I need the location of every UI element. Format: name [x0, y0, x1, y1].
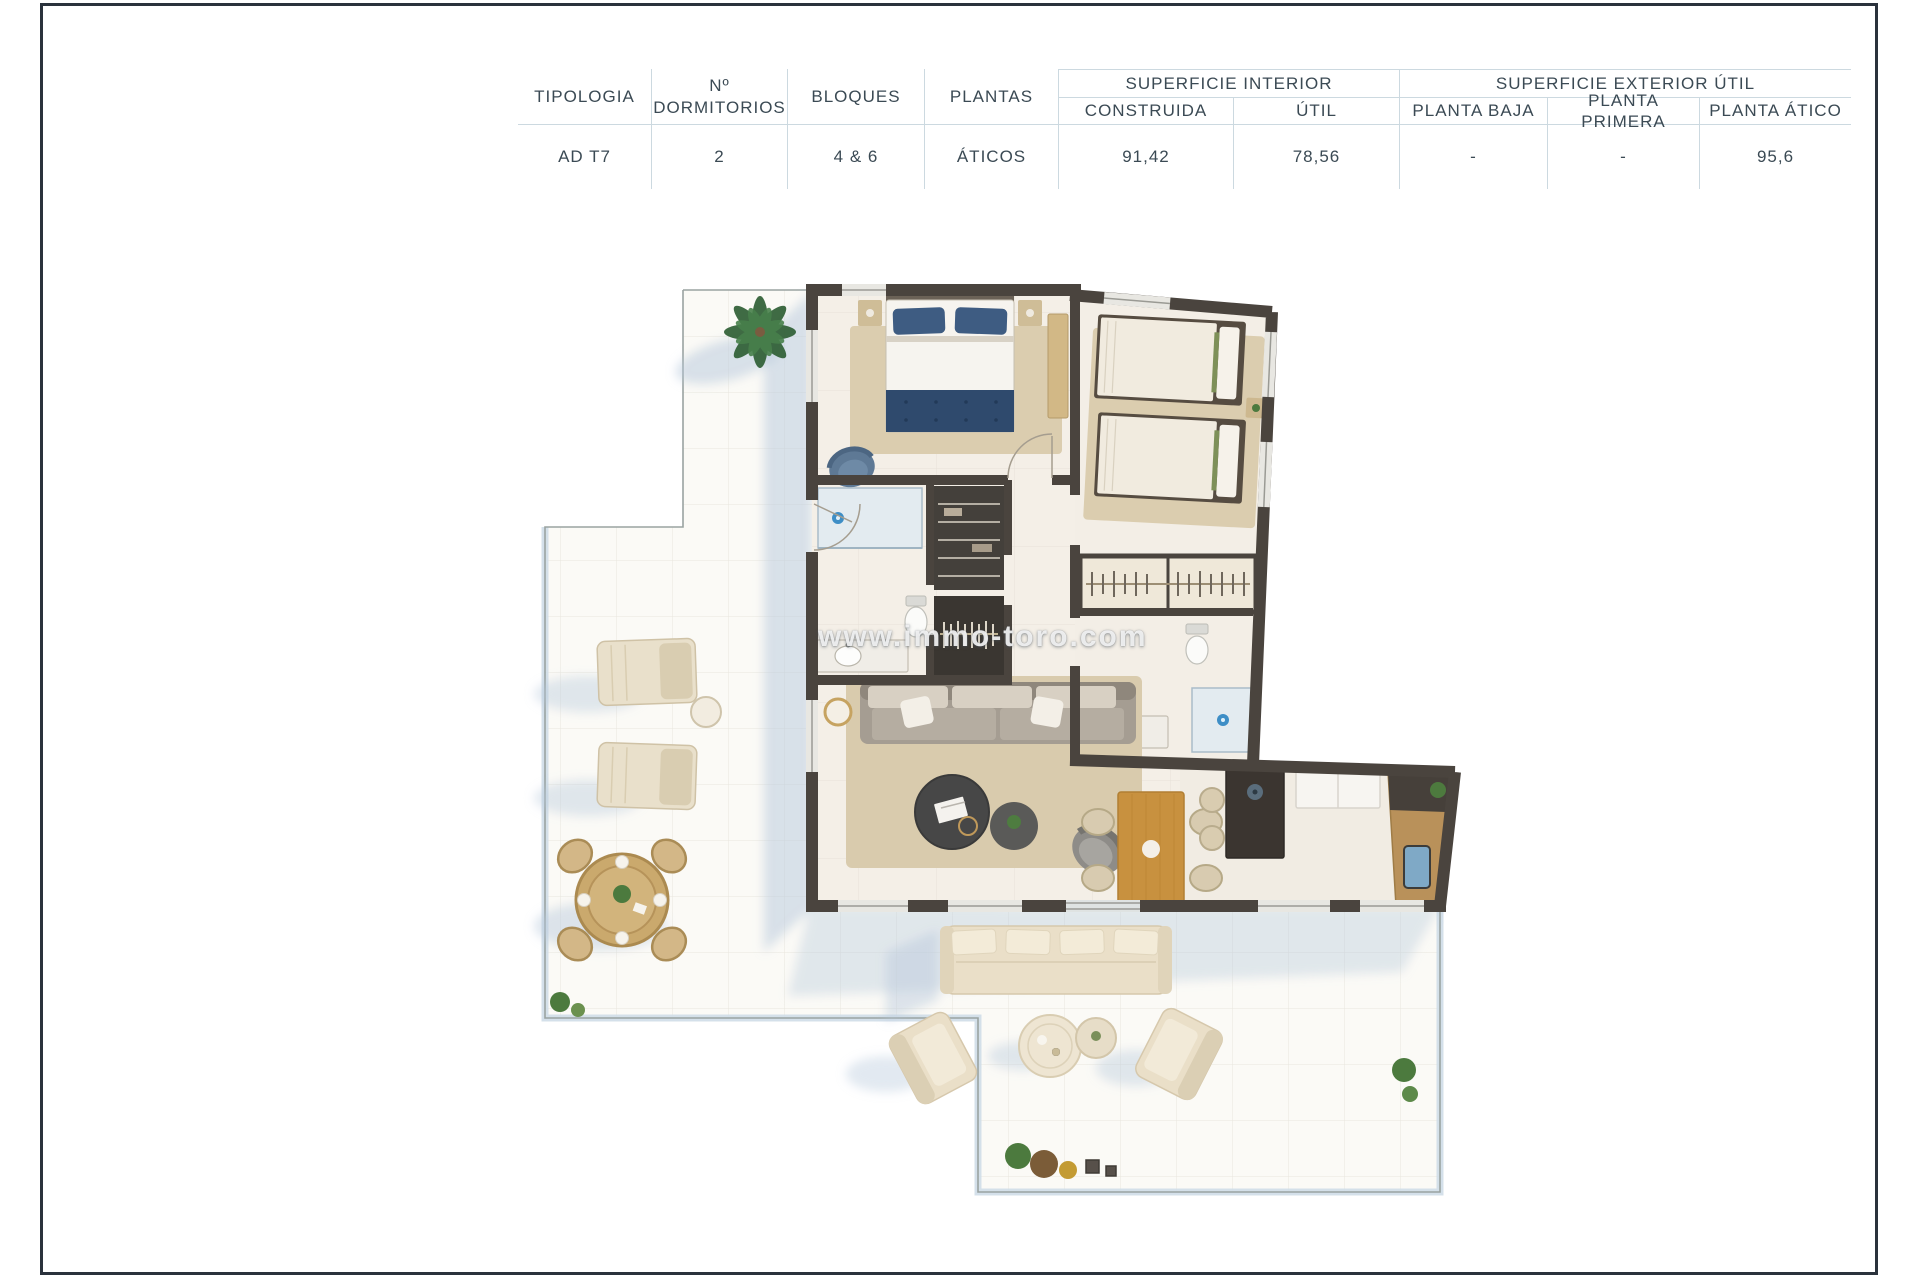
toilet-2	[1186, 624, 1208, 664]
tall-cabinet	[1048, 314, 1068, 418]
living-room	[825, 676, 1142, 884]
stool-1	[1200, 788, 1224, 812]
palm-plant	[724, 296, 796, 368]
sun-lounger-1	[597, 638, 697, 705]
single-bed-1	[1094, 314, 1246, 406]
watermark: www.immo-toro.com	[818, 620, 1098, 654]
lounger-side-table	[691, 697, 721, 727]
double-bed	[886, 296, 1014, 432]
stool-2	[1200, 826, 1224, 850]
corner-plant-small-2	[571, 1003, 585, 1017]
outdoor-armchair-1	[886, 1009, 980, 1107]
kitchen-island	[1226, 766, 1284, 858]
dining-table	[1118, 792, 1184, 906]
single-bed-2	[1094, 412, 1246, 504]
side-table	[825, 699, 851, 725]
kitchen-plant	[1430, 782, 1446, 798]
sofa	[860, 682, 1136, 744]
twin-wardrobe	[1080, 556, 1256, 612]
twin-bedroom	[1080, 314, 1267, 612]
sun-lounger-2	[597, 742, 697, 809]
kitchen-sink	[1404, 846, 1430, 888]
corner-plant-small-1	[550, 992, 570, 1012]
outdoor-sofa	[940, 926, 1172, 994]
